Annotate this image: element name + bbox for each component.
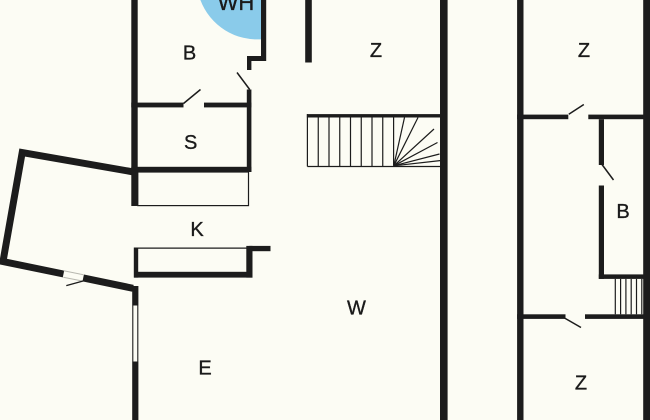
svg-text:K: K: [190, 219, 204, 241]
svg-text:WH: WH: [218, 0, 255, 15]
svg-text:S: S: [184, 132, 197, 154]
svg-text:Z: Z: [578, 40, 590, 62]
svg-text:B: B: [183, 43, 196, 65]
svg-text:B: B: [616, 201, 629, 223]
svg-text:W: W: [347, 298, 366, 320]
svg-text:Z: Z: [370, 40, 382, 62]
svg-text:Z: Z: [575, 373, 587, 395]
svg-text:E: E: [198, 358, 211, 380]
